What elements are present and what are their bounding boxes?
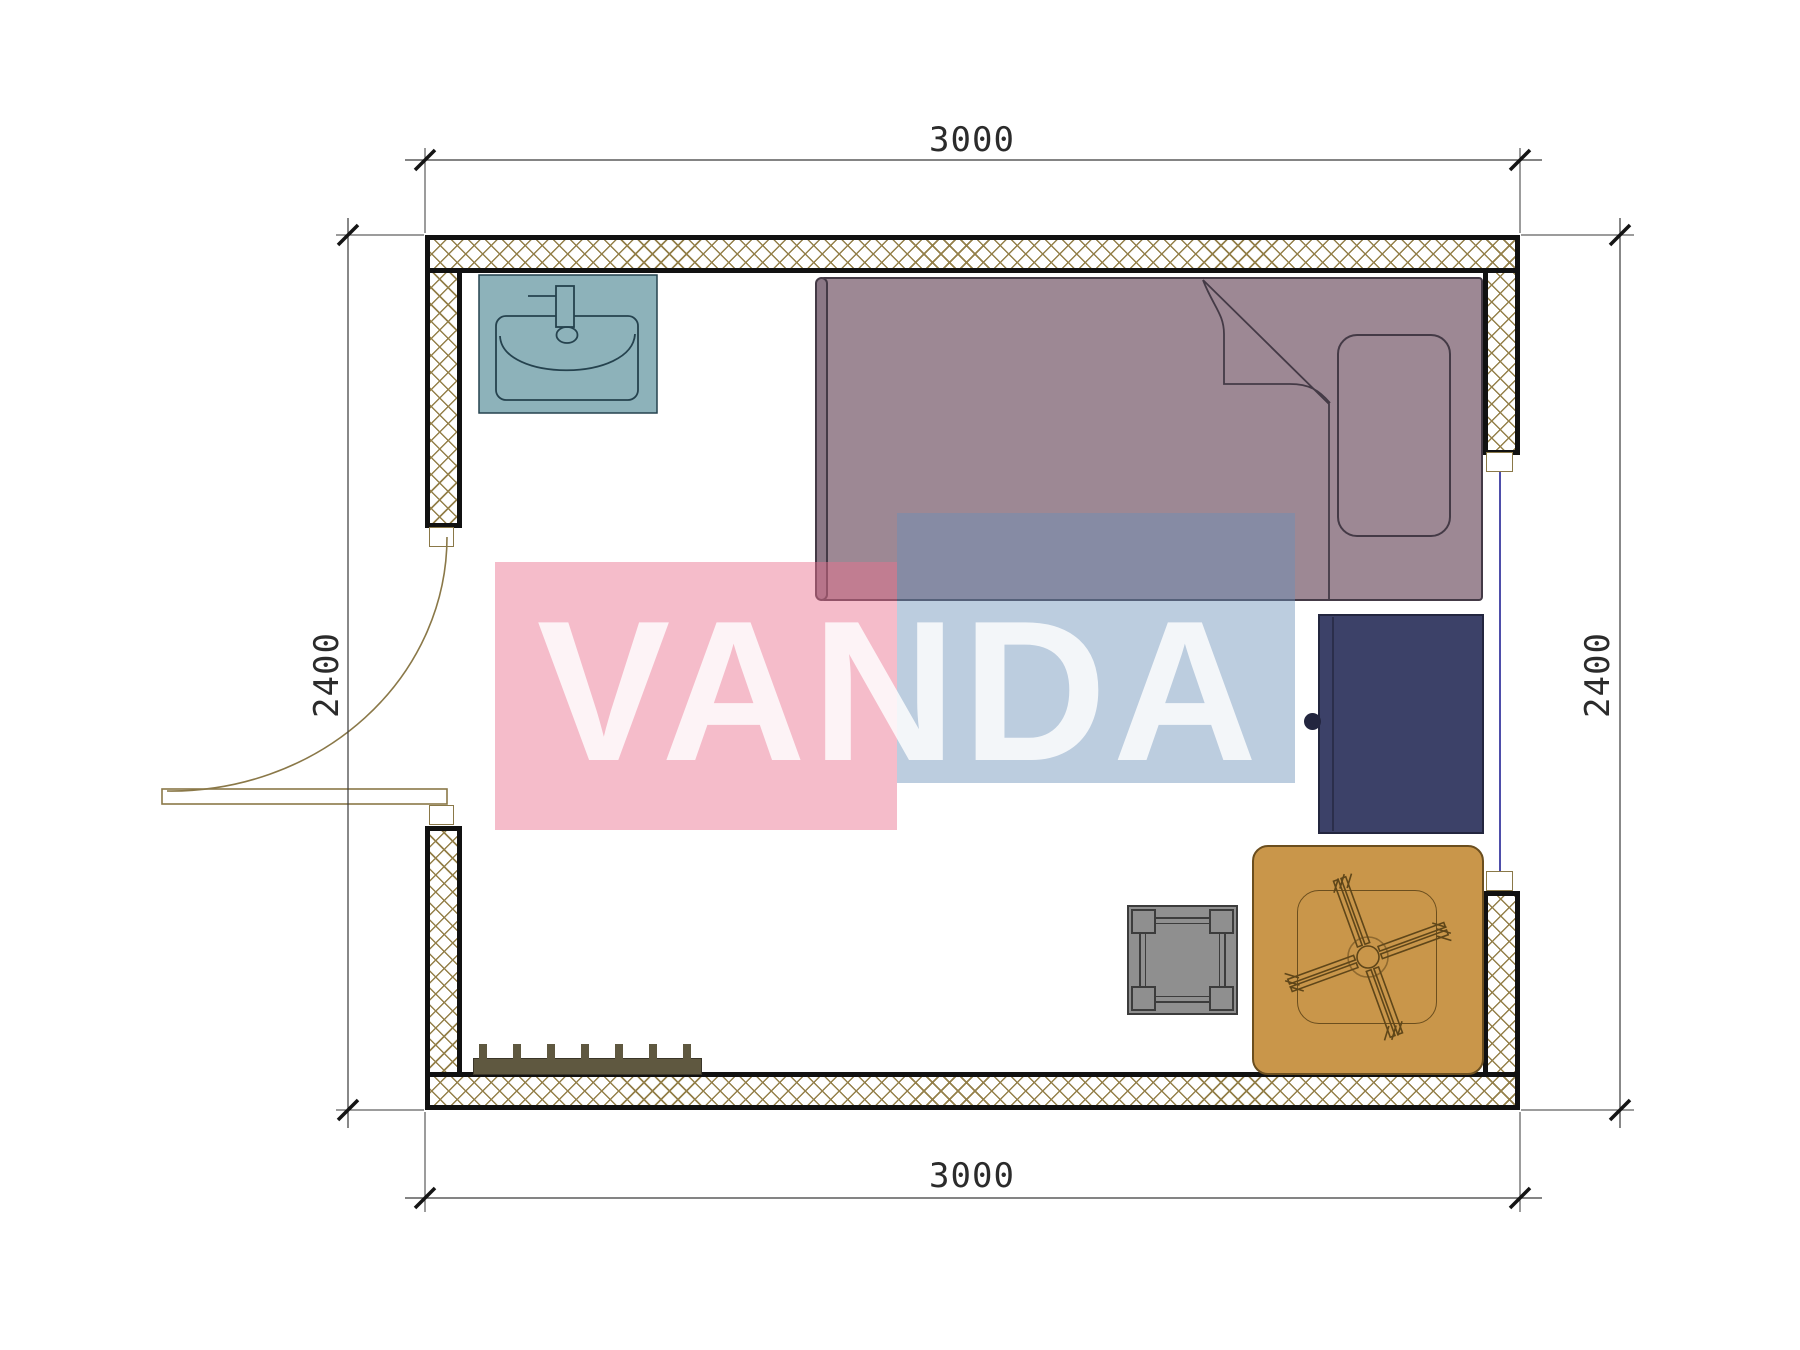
radiator-tooth <box>615 1044 623 1059</box>
radiator-tooth <box>581 1044 589 1059</box>
radiator-bar <box>473 1058 702 1075</box>
wardrobe <box>1318 614 1484 834</box>
watermark-text: VANDA <box>500 592 1300 792</box>
radiator-tooth <box>649 1044 657 1059</box>
pillow <box>1337 334 1451 537</box>
wardrobe-knob <box>1304 713 1321 730</box>
wardrobe-door-line <box>1332 617 1334 831</box>
dimension-label-bottom: 3000 <box>872 1156 1072 1196</box>
window-frame-top <box>1486 452 1513 472</box>
stool-leg <box>1209 986 1234 1011</box>
wall-top <box>425 235 1520 273</box>
radiator-tooth <box>547 1044 555 1059</box>
radiator-tooth <box>683 1044 691 1059</box>
stool-leg <box>1131 986 1156 1011</box>
table-rotor <box>1252 845 1484 1075</box>
wall-bottom <box>425 1072 1520 1110</box>
wall-left-lower <box>425 826 462 1072</box>
floor-plan: 3000 3000 2400 2400 VANDA <box>0 0 1800 1350</box>
dimension-label-left: 2400 <box>307 575 347 775</box>
dimension-label-top: 3000 <box>872 120 1072 160</box>
wall-left-upper <box>425 273 462 528</box>
door-jamb-top-frame <box>429 527 454 547</box>
window-frame-bottom <box>1486 871 1513 891</box>
stool-leg <box>1209 909 1234 934</box>
stool-leg <box>1131 909 1156 934</box>
wall-right-upper <box>1483 273 1520 455</box>
dimension-label-right: 2400 <box>1578 575 1618 775</box>
door-jamb-bottom-frame <box>429 805 454 825</box>
wall-right-lower <box>1483 891 1520 1072</box>
bed-headboard-edge <box>815 277 828 601</box>
radiator-tooth <box>479 1044 487 1059</box>
door <box>162 537 447 804</box>
sink <box>478 274 658 414</box>
radiator-tooth <box>513 1044 521 1059</box>
